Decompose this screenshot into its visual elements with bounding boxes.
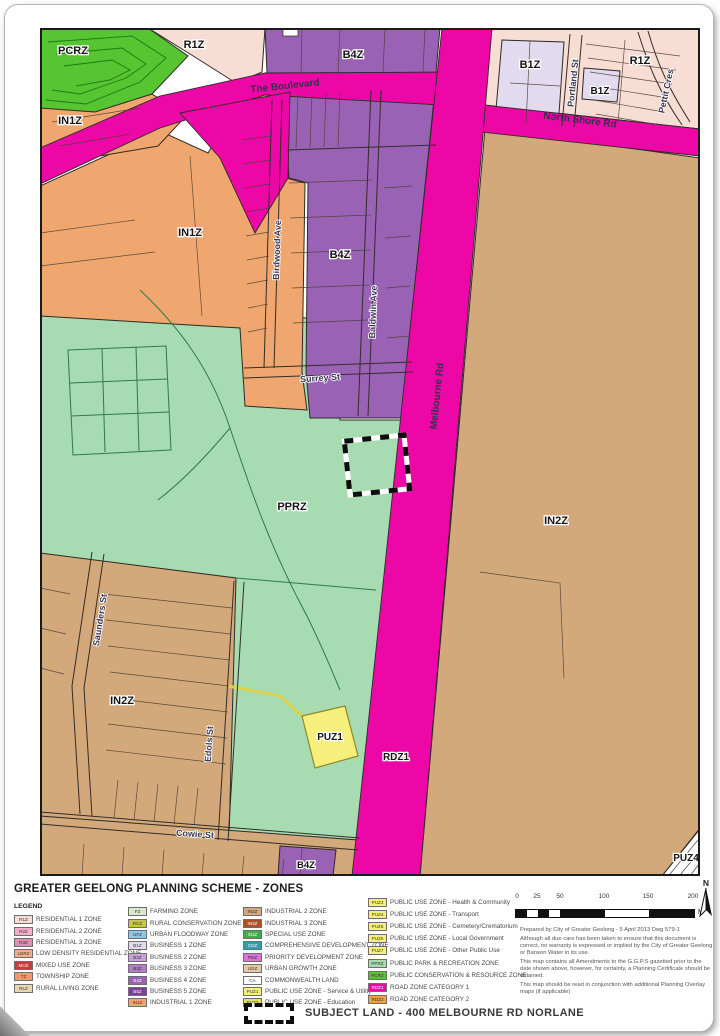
north-label: N <box>697 878 715 888</box>
legend-label: TOWNSHIP ZONE <box>36 973 89 980</box>
legend-label: SPECIAL USE ZONE <box>265 931 325 938</box>
zone-label-b1z-small: B1Z <box>591 86 610 97</box>
legend-item-suz: SUZSPECIAL USE ZONE <box>243 929 389 940</box>
zone-label-in2z-east: IN2Z <box>544 515 568 527</box>
legend-label: RURAL CONSERVATION ZONE <box>150 920 241 927</box>
swatch-puz7: PUZ7 <box>368 946 387 955</box>
legend-item-pprz: PPRZPUBLIC PARK & RECREATION ZONE <box>368 957 526 969</box>
legend-label: PRIORITY DEVELOPMENT ZONE <box>265 954 363 961</box>
zone-label-b4z-mid: B4Z <box>330 249 351 261</box>
legend-label: COMMONWEALTH LAND <box>265 977 339 984</box>
legend-item-ufz: UFZURBAN FLOODWAY ZONE <box>128 929 241 940</box>
swatch-r2z: R2Z <box>14 927 33 936</box>
legend-item-pdz: PDZPRIORITY DEVELOPMENT ZONE <box>243 952 389 963</box>
map-area: PCRZ R1Z B4Z B1Z B1Z R1Z IN1Z IN1Z B4Z I… <box>40 28 700 876</box>
legend-item-ca: CACOMMONWEALTH LAND <box>243 974 389 985</box>
swatch-ugz: UGZ <box>243 964 262 973</box>
subject-land-icon <box>244 1003 294 1024</box>
swatch-b2z: B2Z <box>128 953 147 962</box>
scale-bar: 0 25 50 100 150 200 M <box>515 893 715 925</box>
legend-label: PUBLIC CONSERVATION & RESOURCE ZONE <box>390 972 526 979</box>
legend-label: FARMING ZONE <box>150 908 198 915</box>
legend-label: RESIDENTIAL 1 ZONE <box>36 916 102 923</box>
legend-column-2: FZFARMING ZONE RCZRURAL CONSERVATION ZON… <box>128 906 241 1009</box>
legend-label: PUBLIC USE ZONE - Cemetery/Crematorium <box>390 923 518 930</box>
scale-bar-graphic <box>515 909 695 918</box>
swatch-in2z: IN2Z <box>243 907 262 916</box>
zone-map-canvas: PCRZ R1Z B4Z B1Z B1Z R1Z IN1Z IN1Z B4Z I… <box>40 28 700 876</box>
swatch-b3z: B3Z <box>128 964 147 973</box>
legend-item-pcrz: PCRZPUBLIC CONSERVATION & RESOURCE ZONE <box>368 969 526 981</box>
scale-tick: 150 <box>643 893 654 900</box>
legend-item-in1z: IN1ZINDUSTRIAL 1 ZONE <box>128 997 241 1008</box>
zone-label-b4z-south: B4Z <box>297 860 315 871</box>
swatch-suz: SUZ <box>243 930 262 939</box>
legend-label: INDUSTRIAL 1 ZONE <box>150 999 212 1006</box>
swatch-tz: TZ <box>14 972 33 981</box>
legend-label: PUBLIC USE ZONE - Other Public Use <box>390 947 500 954</box>
legend-item-puz4: PUZ4PUBLIC USE ZONE - Transport <box>368 908 526 920</box>
legend-item-r2z: R2ZRESIDENTIAL 2 ZONE <box>14 925 141 936</box>
subject-land-label: SUBJECT LAND - 400 MELBOURNE RD NORLANE <box>305 1007 584 1019</box>
legend-item-tz: TZTOWNSHIP ZONE <box>14 971 141 982</box>
page-title: GREATER GEELONG PLANNING SCHEME - ZONES <box>14 883 303 895</box>
swatch-rlz: RLZ <box>14 984 33 993</box>
swatch-r1z: R1Z <box>14 915 33 924</box>
legend-item-b2z: B2ZBUSINESS 2 ZONE <box>128 952 241 963</box>
swatch-cdz: CDZ <box>243 941 262 950</box>
legend-label: PUBLIC PARK & RECREATION ZONE <box>390 960 499 967</box>
legend-item-puz7: PUZ7PUBLIC USE ZONE - Other Public Use <box>368 945 526 957</box>
swatch-in1z: IN1Z <box>128 998 147 1007</box>
swatch-puz3: PUZ3 <box>368 898 387 907</box>
scale-tick: 50 <box>556 893 563 900</box>
legend-item-ugz: UGZURBAN GROWTH ZONE <box>243 963 389 974</box>
zone-label-in2z-west: IN2Z <box>110 695 134 707</box>
swatch-puz4: PUZ4 <box>368 910 387 919</box>
swatch-r3z: R3Z <box>14 938 33 947</box>
legend-item-b4z: B4ZBUSINESS 4 ZONE <box>128 974 241 985</box>
swatch-ufz: UFZ <box>128 930 147 939</box>
zone-label-r1z-nw: R1Z <box>184 39 205 51</box>
note-line: Although all due care has been taken to … <box>520 936 714 957</box>
legend-item-cdz: CDZCOMPREHENSIVE DEVELOPMENT ZONE <box>243 940 389 951</box>
swatch-puz1: PUZ1 <box>243 987 262 996</box>
legend-item-rcz: RCZRURAL CONSERVATION ZONE <box>128 917 241 928</box>
legend-item-b3z: B3ZBUSINESS 3 ZONE <box>128 963 241 974</box>
legend-item-in3z: IN3ZINDUSTRIAL 3 ZONE <box>243 917 389 928</box>
zone-label-in1z-nw: IN1Z <box>58 115 82 127</box>
legend-label: PUBLIC USE ZONE - Health & Community <box>390 899 510 906</box>
legend-label: RESIDENTIAL 3 ZONE <box>36 939 102 946</box>
swatch-b5z: B5Z <box>128 987 147 996</box>
legend-label: RURAL LIVING ZONE <box>36 985 99 992</box>
legend-column-1: R1ZRESIDENTIAL 1 ZONE R2ZRESIDENTIAL 2 Z… <box>14 914 141 994</box>
swatch-ldrz: LDRZ <box>14 949 33 958</box>
legend-label: BUSINESS 1 ZONE <box>150 942 206 949</box>
subject-land-row: SUBJECT LAND - 400 MELBOURNE RD NORLANE <box>244 1000 584 1026</box>
legend-label: BUSINESS 2 ZONE <box>150 954 206 961</box>
north-arrow-icon <box>698 888 714 918</box>
legend-item-ldrz: LDRZLOW DENSITY RESIDENTIAL ZONE <box>14 948 141 959</box>
scale-tick: 100 <box>599 893 610 900</box>
legend-label: MIXED USE ZONE <box>36 962 90 969</box>
scale-tick: 25 <box>533 893 540 900</box>
note-line: This map contains all Amendments to the … <box>520 959 714 980</box>
swatch-muz: MUZ <box>14 961 33 970</box>
zone-label-b1z-main: B1Z <box>520 59 541 71</box>
legend-label: URBAN GROWTH ZONE <box>265 965 337 972</box>
legend-item-rlz: RLZRURAL LIVING ZONE <box>14 982 141 993</box>
legend-item-puz5: PUZ5PUBLIC USE ZONE - Cemetery/Crematori… <box>368 920 526 932</box>
legend-item-puz6: PUZ6PUBLIC USE ZONE - Local Government <box>368 933 526 945</box>
legend-column-4: PUZ3PUBLIC USE ZONE - Health & Community… <box>368 896 526 1006</box>
legend-label: BUSINESS 3 ZONE <box>150 965 206 972</box>
legend-label: URBAN FLOODWAY ZONE <box>150 931 228 938</box>
swatch-b4z: B4Z <box>128 976 147 985</box>
swatch-in3z: IN3Z <box>243 919 262 928</box>
zone-label-puz4: PUZ4 <box>673 853 699 864</box>
swatch-pdz: PDZ <box>243 953 262 962</box>
swatch-fz: FZ <box>128 907 147 916</box>
legend-item-b1z: B1ZBUSINESS 1 ZONE <box>128 940 241 951</box>
zone-label-b4z-top: B4Z <box>343 49 364 61</box>
legend-item-puz3: PUZ3PUBLIC USE ZONE - Health & Community <box>368 896 526 908</box>
zone-label-pprz: PPRZ <box>277 501 307 513</box>
swatch-puz5: PUZ5 <box>368 922 387 931</box>
swatch-rcz: RCZ <box>128 919 147 928</box>
legend-item-rdz1: RDZ1ROAD ZONE CATEGORY 1 <box>368 981 526 993</box>
legend-label: INDUSTRIAL 2 ZONE <box>265 908 327 915</box>
legend-column-3: IN2ZINDUSTRIAL 2 ZONE IN3ZINDUSTRIAL 3 Z… <box>243 906 389 1009</box>
legend-label: PUBLIC USE ZONE - Local Government <box>390 935 504 942</box>
legend-item-r3z: R3ZRESIDENTIAL 3 ZONE <box>14 937 141 948</box>
swatch-rdz1: RDZ1 <box>368 983 387 992</box>
map-notes: Prepared by City of Greater Geelong - 5 … <box>520 927 714 998</box>
north-arrow: N <box>697 878 715 923</box>
legend-label: PUBLIC USE ZONE - Transport <box>390 911 479 918</box>
street-label-baldwin: Baldwin Ave <box>367 285 379 338</box>
legend-item-r1z: R1ZRESIDENTIAL 1 ZONE <box>14 914 141 925</box>
note-line: Prepared by City of Greater Geelong - 5 … <box>520 927 714 934</box>
note-line: This map should be read in conjunction w… <box>520 982 714 996</box>
zone-label-r1z-ne: R1Z <box>630 55 651 67</box>
swatch-b1z: B1Z <box>128 941 147 950</box>
legend-label: PUBLIC USE ZONE - Service & Utility <box>265 988 371 995</box>
zone-label-pcrz: PCRZ <box>58 45 88 57</box>
legend-label: BUSINESS 5 ZONE <box>150 988 206 995</box>
legend-label: BUSINESS 4 ZONE <box>150 977 206 984</box>
legend-heading: LEGEND <box>14 903 42 910</box>
planning-map-page: PCRZ R1Z B4Z B1Z B1Z R1Z IN1Z IN1Z B4Z I… <box>0 0 720 1036</box>
legend-item-b5z: B5ZBUSINESS 5 ZONE <box>128 986 241 997</box>
legend-item-muz: MUZMIXED USE ZONE <box>14 960 141 971</box>
swatch-pprz: PPRZ <box>368 959 387 968</box>
swatch-puz6: PUZ6 <box>368 934 387 943</box>
legend-label: INDUSTRIAL 3 ZONE <box>265 920 327 927</box>
scale-tick: 0 <box>515 893 519 900</box>
legend-label: RESIDENTIAL 2 ZONE <box>36 928 102 935</box>
legend-label: ROAD ZONE CATEGORY 1 <box>390 984 469 991</box>
legend-label: LOW DENSITY RESIDENTIAL ZONE <box>36 950 141 957</box>
zone-label-in1z-main: IN1Z <box>178 227 202 239</box>
legend-item-fz: FZFARMING ZONE <box>128 906 241 917</box>
legend-item-in2z: IN2ZINDUSTRIAL 2 ZONE <box>243 906 389 917</box>
swatch-ca: CA <box>243 976 262 985</box>
swatch-pcrz: PCRZ <box>368 971 387 980</box>
legend-item-puz1: PUZ1PUBLIC USE ZONE - Service & Utility <box>243 986 389 997</box>
zone-label-rdz1: RDZ1 <box>383 752 410 763</box>
street-label-birdwood: Birdwood Ave <box>271 220 283 280</box>
zone-label-puz1: PUZ1 <box>317 732 343 743</box>
